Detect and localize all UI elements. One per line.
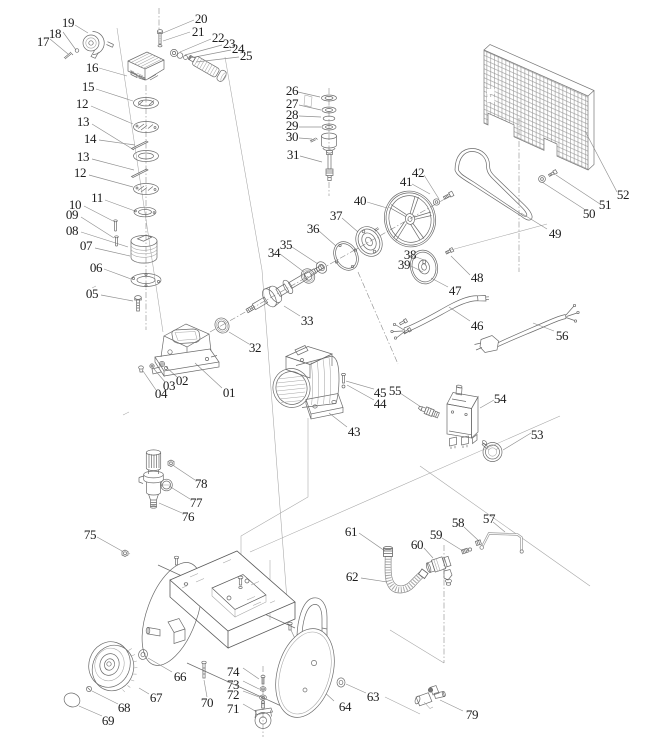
svg-text:12: 12 — [76, 96, 88, 111]
svg-text:31: 31 — [287, 147, 299, 162]
svg-text:68: 68 — [118, 700, 130, 715]
svg-text:45: 45 — [374, 385, 386, 400]
svg-text:77: 77 — [190, 495, 203, 510]
svg-text:16: 16 — [86, 60, 99, 75]
svg-text:25: 25 — [240, 48, 252, 63]
svg-text:07: 07 — [80, 238, 93, 253]
svg-text:12: 12 — [74, 165, 86, 180]
svg-text:33: 33 — [301, 313, 313, 328]
svg-text:60: 60 — [411, 537, 423, 552]
svg-text:76: 76 — [182, 509, 195, 524]
svg-text:71: 71 — [227, 701, 239, 716]
svg-text:64: 64 — [339, 699, 352, 714]
svg-text:56: 56 — [556, 328, 569, 343]
svg-text:67: 67 — [150, 690, 163, 705]
svg-text:69: 69 — [102, 713, 114, 728]
svg-text:10: 10 — [69, 197, 81, 212]
svg-text:02: 02 — [176, 373, 188, 388]
svg-text:75: 75 — [84, 527, 96, 542]
svg-text:35: 35 — [280, 237, 292, 252]
svg-text:13: 13 — [77, 114, 89, 129]
svg-text:57: 57 — [483, 511, 496, 526]
svg-text:54: 54 — [494, 391, 507, 406]
svg-text:08: 08 — [66, 223, 78, 238]
svg-text:32: 32 — [249, 340, 261, 355]
svg-text:52: 52 — [617, 187, 629, 202]
svg-text:01: 01 — [223, 385, 235, 400]
svg-text:73: 73 — [227, 677, 239, 692]
svg-text:61: 61 — [345, 524, 357, 539]
svg-text:51: 51 — [599, 197, 611, 212]
svg-text:11: 11 — [91, 190, 103, 205]
svg-text:41: 41 — [400, 174, 412, 189]
svg-text:66: 66 — [174, 669, 187, 684]
svg-text:13: 13 — [77, 149, 89, 164]
svg-text:70: 70 — [201, 695, 213, 710]
svg-text:21: 21 — [192, 24, 204, 39]
svg-text:48: 48 — [471, 270, 483, 285]
svg-text:18: 18 — [49, 26, 61, 41]
svg-text:39: 39 — [398, 257, 410, 272]
svg-text:79: 79 — [466, 707, 478, 722]
svg-text:55: 55 — [389, 383, 401, 398]
svg-text:53: 53 — [531, 427, 543, 442]
svg-text:62: 62 — [346, 569, 358, 584]
svg-text:59: 59 — [430, 527, 442, 542]
svg-text:19: 19 — [62, 15, 74, 30]
svg-text:78: 78 — [195, 476, 207, 491]
svg-text:40: 40 — [354, 193, 366, 208]
svg-text:04: 04 — [155, 386, 168, 401]
svg-text:49: 49 — [549, 226, 561, 241]
svg-text:43: 43 — [348, 424, 360, 439]
svg-text:74: 74 — [227, 664, 240, 679]
svg-text:30: 30 — [286, 129, 298, 144]
svg-text:37: 37 — [330, 208, 343, 223]
svg-text:15: 15 — [82, 79, 94, 94]
svg-text:05: 05 — [86, 286, 98, 301]
svg-text:58: 58 — [452, 515, 464, 530]
svg-text:63: 63 — [367, 689, 379, 704]
svg-text:06: 06 — [90, 260, 103, 275]
svg-text:42: 42 — [412, 165, 424, 180]
svg-text:50: 50 — [583, 206, 595, 221]
svg-text:36: 36 — [307, 221, 320, 236]
svg-text:14: 14 — [84, 131, 97, 146]
svg-text:47: 47 — [449, 283, 462, 298]
svg-text:46: 46 — [471, 318, 484, 333]
